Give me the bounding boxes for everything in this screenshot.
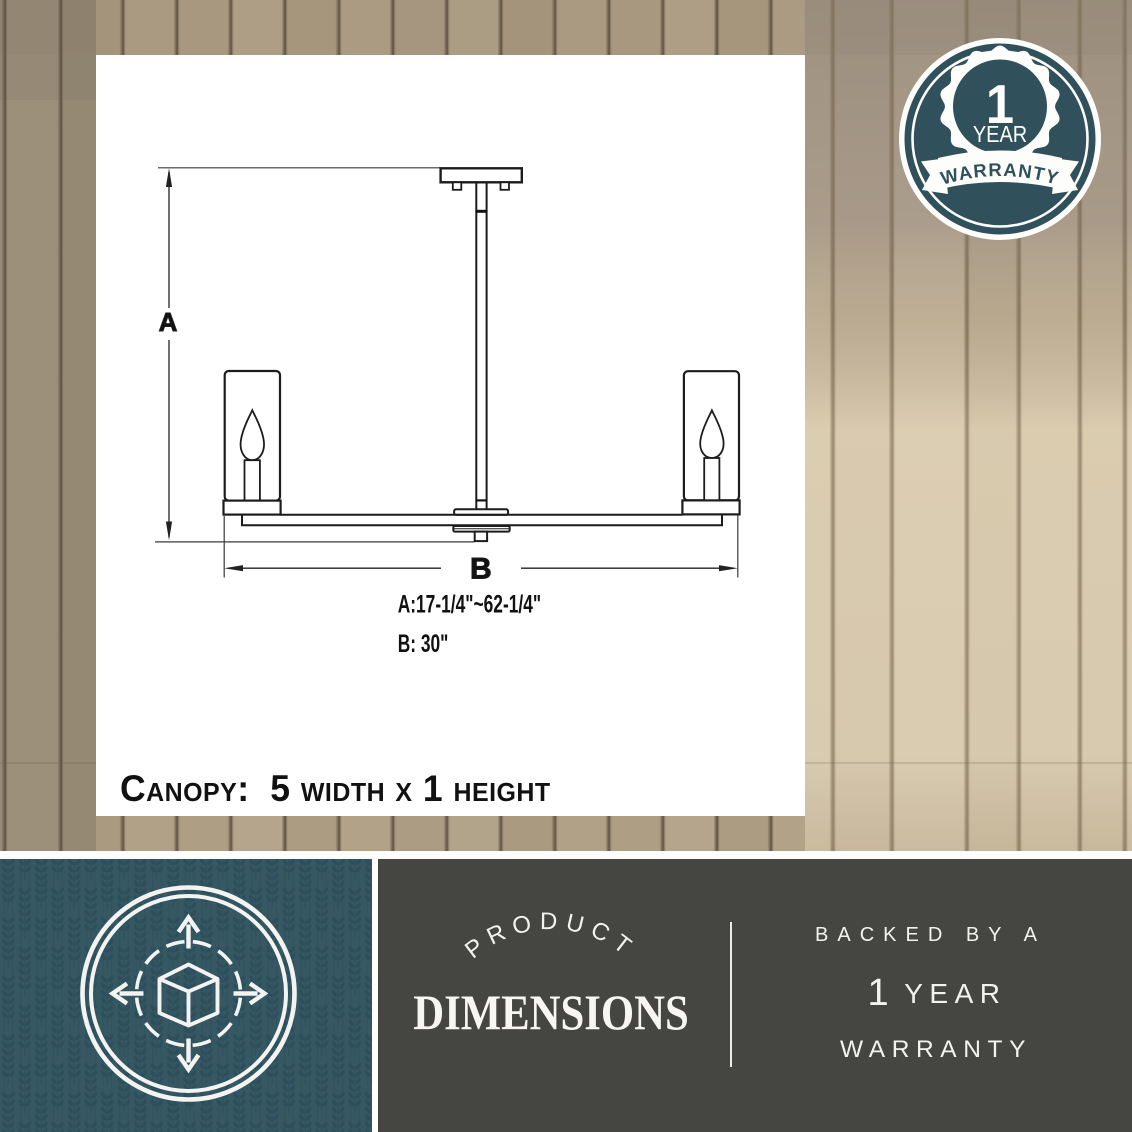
svg-text:B: B (470, 553, 492, 586)
svg-text:A: A (159, 307, 178, 337)
svg-text:PRODUCT: PRODUCT (460, 908, 642, 964)
svg-text:A:17-1/4"~62-1/4": A:17-1/4"~62-1/4" (398, 590, 541, 618)
svg-text:B: 30": B: 30" (398, 630, 449, 658)
svg-text:YEAR: YEAR (973, 121, 1027, 148)
